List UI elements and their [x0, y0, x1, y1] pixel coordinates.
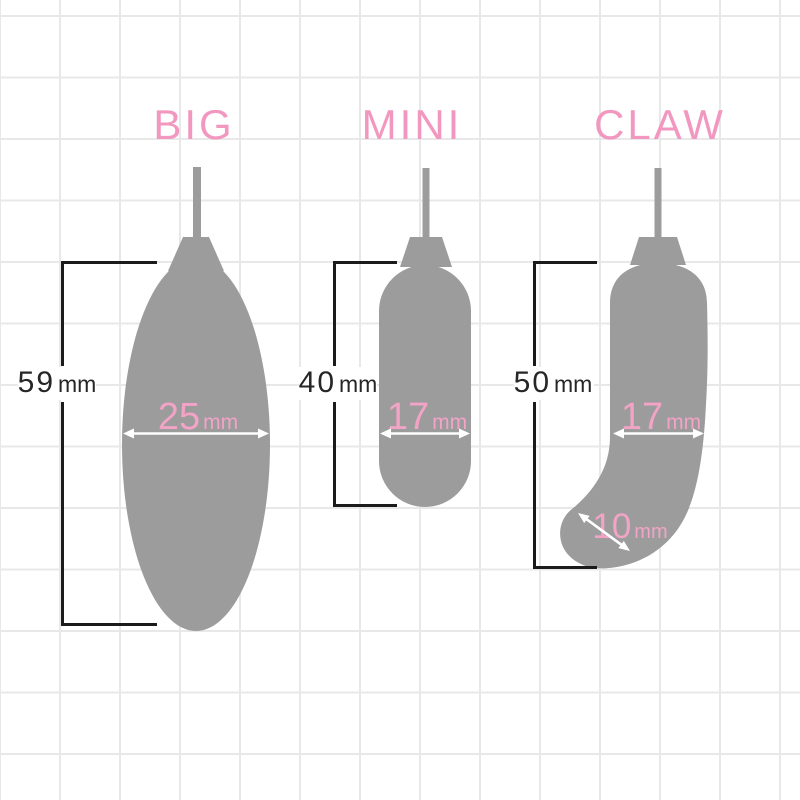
- cap-mini: [400, 237, 452, 267]
- cord-icon-claw: [655, 168, 662, 240]
- figure-claw: CLAW 50mm 17mm 10mm: [514, 101, 726, 568]
- height-value-mini: 40: [299, 366, 336, 399]
- cord-icon-mini: [423, 168, 430, 240]
- width-value-mini: 17: [387, 396, 429, 438]
- product-title-claw: CLAW: [594, 101, 726, 148]
- figure-mini: MINI 40mm 17mm: [299, 101, 471, 507]
- cord-icon-big: [193, 167, 201, 240]
- product-title-mini: MINI: [362, 101, 463, 148]
- diagram-svg: BIG 59mm 25mm MINI 40mm 17mm: [0, 0, 800, 800]
- figure-big: BIG 59mm 25mm: [18, 101, 270, 631]
- width-unit-big: mm: [203, 411, 238, 434]
- tip-unit-claw: mm: [634, 521, 667, 543]
- height-value-claw: 50: [514, 366, 551, 399]
- cap-claw: [630, 237, 686, 265]
- height-unit-mini: mm: [339, 371, 377, 397]
- height-unit-big: mm: [58, 371, 96, 397]
- product-title-big: BIG: [153, 101, 234, 148]
- body-shape-mini: [379, 265, 471, 507]
- body-shape-big: [122, 258, 270, 631]
- width-value-big: 25: [158, 396, 200, 438]
- size-comparison-diagram: BIG 59mm 25mm MINI 40mm 17mm: [0, 0, 800, 800]
- height-value-big: 59: [18, 366, 55, 399]
- width-value-claw: 17: [621, 396, 663, 438]
- height-unit-claw: mm: [554, 371, 592, 397]
